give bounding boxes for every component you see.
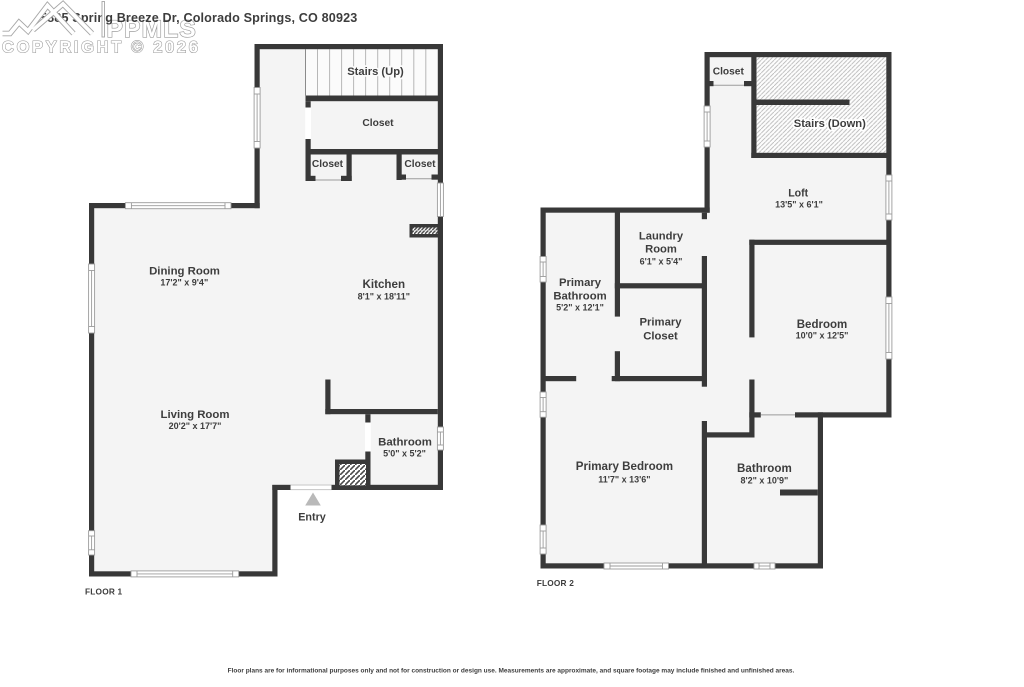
svg-text:Closet: Closet — [713, 66, 745, 77]
svg-text:Kitchen: Kitchen — [363, 278, 406, 291]
svg-text:17'2" x 9'4": 17'2" x 9'4" — [160, 277, 208, 287]
svg-text:5'2" x 12'1": 5'2" x 12'1" — [556, 302, 604, 312]
svg-text:Bathroom: Bathroom — [378, 437, 432, 449]
svg-text:Bathroom: Bathroom — [737, 462, 792, 475]
svg-text:COPYRIGHT © 2026: COPYRIGHT © 2026 — [2, 39, 201, 57]
svg-text:Primary: Primary — [559, 277, 602, 289]
svg-text:Bedroom: Bedroom — [797, 319, 847, 331]
svg-text:Loft: Loft — [788, 188, 808, 200]
svg-text:Bathroom: Bathroom — [553, 290, 606, 302]
svg-text:Stairs (Down): Stairs (Down) — [794, 118, 866, 130]
svg-text:Room: Room — [645, 243, 677, 255]
svg-text:Floor plans are for informatio: Floor plans are for informational purpos… — [228, 667, 795, 674]
svg-text:Dining Room: Dining Room — [149, 266, 220, 278]
svg-text:Primary: Primary — [639, 317, 682, 329]
svg-text:Closet: Closet — [643, 330, 678, 342]
svg-text:20'2" x 17'7": 20'2" x 17'7" — [169, 421, 222, 431]
svg-text:13'5" x 6'1": 13'5" x 6'1" — [775, 200, 823, 210]
svg-text:10'0" x 12'5": 10'0" x 12'5" — [796, 330, 849, 340]
svg-text:Laundry: Laundry — [639, 231, 684, 243]
svg-text:Closet: Closet — [404, 159, 436, 170]
svg-text:5'0" x 5'2": 5'0" x 5'2" — [383, 448, 426, 458]
svg-text:5885 Spring Breeze Dr, Colorad: 5885 Spring Breeze Dr, Colorado Springs,… — [40, 11, 357, 25]
svg-text:FLOOR 2: FLOOR 2 — [537, 578, 575, 588]
svg-text:Closet: Closet — [312, 159, 344, 170]
svg-text:Primary Bedroom: Primary Bedroom — [576, 460, 673, 473]
svg-text:11'7" x 13'6": 11'7" x 13'6" — [598, 474, 650, 484]
svg-text:Closet: Closet — [362, 118, 394, 129]
svg-text:FLOOR 1: FLOOR 1 — [85, 586, 123, 596]
svg-text:8'2" x 10'9": 8'2" x 10'9" — [740, 475, 788, 485]
svg-text:Living Room: Living Room — [161, 409, 230, 421]
svg-text:6'1" x 5'4": 6'1" x 5'4" — [640, 256, 683, 266]
svg-text:8'1" x 18'11": 8'1" x 18'11" — [358, 291, 410, 301]
svg-text:Stairs (Up): Stairs (Up) — [347, 66, 404, 78]
svg-text:Entry: Entry — [298, 512, 326, 524]
